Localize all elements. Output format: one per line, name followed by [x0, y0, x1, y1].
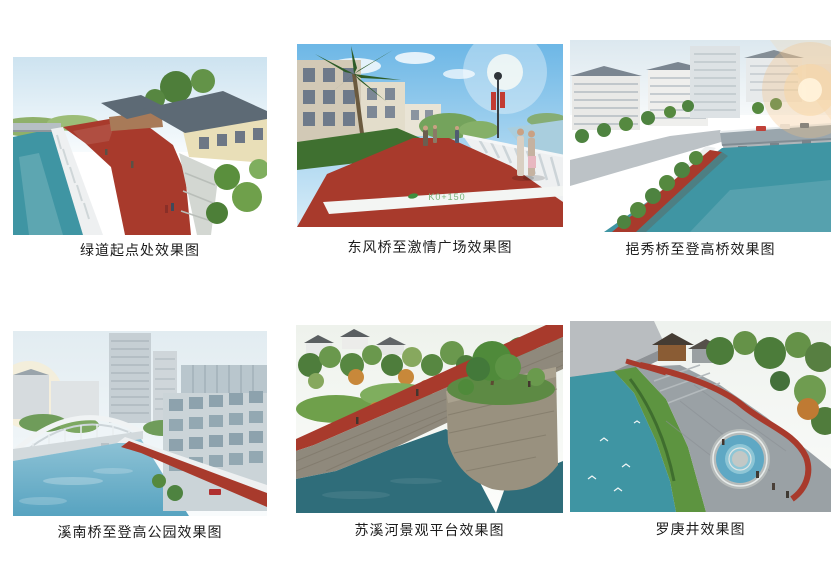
figure-caption-5: 苏溪河景观平台效果图: [296, 520, 563, 540]
yixiu-bridge-image: [570, 40, 831, 232]
dongfeng-bridge-image: K0+150: [297, 44, 563, 227]
document-page: 绿道起点处效果图: [0, 0, 835, 577]
rendering-luogeng-well: [570, 321, 831, 512]
xinan-bridge-image: [13, 331, 267, 516]
figure-caption-2: 东风桥至激情广场效果图: [297, 237, 563, 257]
rendering-greenway-start: [13, 57, 267, 235]
rendering-dongfeng-bridge: K0+150: [297, 44, 563, 227]
figure-caption-3: 挹秀桥至登高桥效果图: [570, 239, 831, 259]
figure-caption-6: 罗庚井效果图: [570, 519, 831, 539]
well-pool: [710, 429, 770, 489]
suxi-platform-image: [296, 325, 563, 513]
luogeng-well-image: [570, 321, 831, 512]
figure-caption-1: 绿道起点处效果图: [13, 240, 267, 260]
greenway-start-image: [13, 57, 267, 235]
chainage-label: K0+150: [428, 192, 465, 202]
garden: [179, 153, 267, 235]
rendering-suxi-platform: [296, 325, 563, 513]
rendering-yixiu-bridge: [570, 40, 831, 232]
rendering-xinan-bridge: [13, 331, 267, 516]
figure-caption-4: 溪南桥至登高公园效果图: [13, 522, 267, 542]
